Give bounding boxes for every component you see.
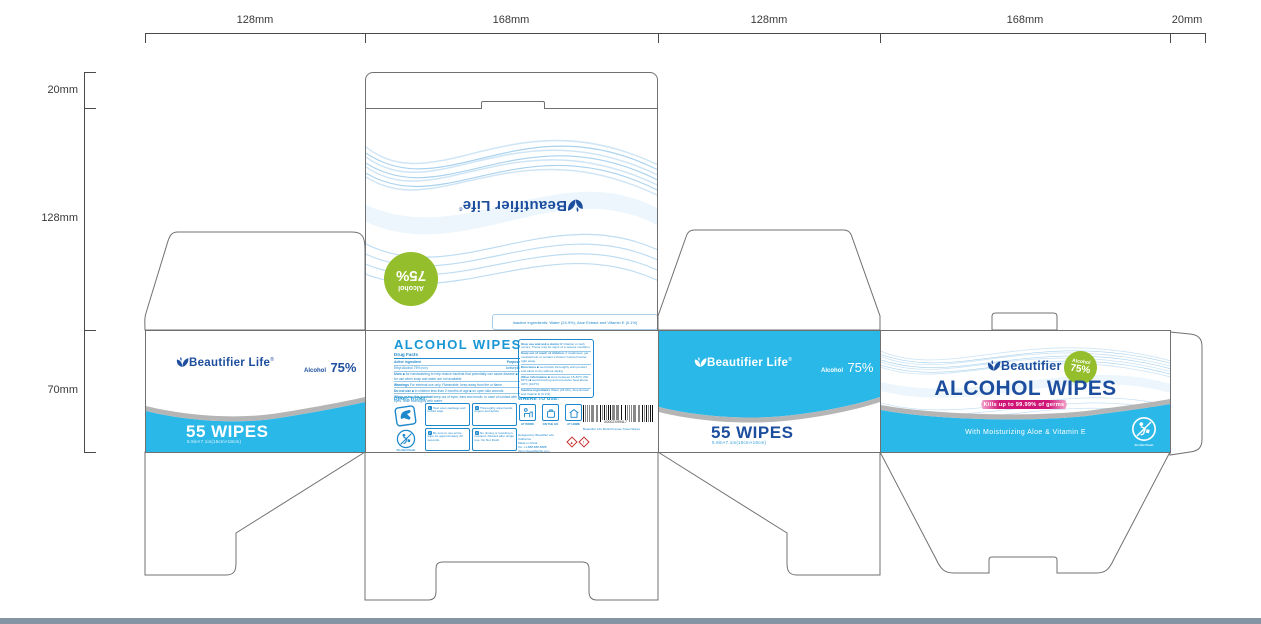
front-face-panel: Beautifier Life® Alcohol 75% ALCOHOL WIP… <box>880 330 1171 453</box>
drug-facts-box-2: Stop use and ask a doctor if irritation … <box>518 339 594 398</box>
contact-block: Designed by Beautifier Life California M… <box>518 433 566 453</box>
active-ingredient: Ethyl Alcohol 75% (v/v) <box>394 366 428 370</box>
tuck-tab-top <box>992 313 1057 330</box>
at-home-label: AT HOME <box>564 422 583 426</box>
alcohol-word: Alcohol <box>821 368 843 374</box>
tagline: With Moisturizing Aloe & Vitamin E <box>965 429 1086 436</box>
glue-flap-right <box>1170 332 1202 455</box>
leaf-icon <box>694 357 707 369</box>
hazard-icons: ▲ ! <box>568 438 588 446</box>
wipes-size: 5.9in×7.1in(15cm×18cm) <box>187 439 241 444</box>
drug-facts-box: Drug Facts Active ingredient Purpose Eth… <box>394 352 520 404</box>
bottom-flap-3 <box>658 452 880 575</box>
do-not-flush-caption: Do Not Flush <box>1127 443 1161 447</box>
badge-percent: 75% <box>396 267 426 283</box>
percent-value: 75% <box>847 360 873 375</box>
uses-text: ■ for handwashing to help reduce bacteri… <box>394 372 518 380</box>
directions-heading: DIRECTIONS: <box>394 397 427 402</box>
contact-line-1: Designed by Beautifier Life California <box>518 433 566 441</box>
do-not-use-label: Do not use <box>394 389 411 393</box>
active-ingredient-label: Active ingredient <box>394 360 421 364</box>
wipes-size: 5.9in×7.1in(15cm×18cm) <box>712 440 766 445</box>
dust-flap-middle <box>658 230 880 330</box>
alcohol-75-label: Alcohol 75% <box>821 359 873 377</box>
alcohol-75-label: Alcohol 75% <box>304 359 356 377</box>
registered-mark: ® <box>788 357 792 363</box>
barcode-caption: Beautifier Life Multi-Purpose Towel Wipe… <box>583 427 640 431</box>
where-to-use-tiles: AT WORK ON THE GO AT HOME <box>518 404 583 426</box>
on-the-go-label: ON THE GO <box>541 422 560 426</box>
step-text: Tear open package and unfold wipe. <box>428 406 466 414</box>
do-not-flush-caption: Do Not Flush <box>392 448 420 452</box>
claim-ribbon: Kills up to 99.99% of germs <box>981 400 1067 409</box>
step-text: Thoroughly wipe hands, fingers and artic… <box>475 406 513 414</box>
directions-steps: 1Tear open package and unfold wipe. 3Tho… <box>425 403 517 451</box>
brand-logo: Beautifier Life® <box>176 357 274 369</box>
bottom-flap-2 <box>365 452 658 600</box>
at-work-label: AT WORK <box>518 422 537 426</box>
bottom-flap-4 <box>880 452 1170 573</box>
warnings-text: For external use only. Flammable, keep a… <box>410 383 503 387</box>
thumb-tab <box>481 101 545 109</box>
on-the-go-icon <box>542 404 559 421</box>
bottom-flap-1 <box>145 452 365 575</box>
front-info-panel: ALCOHOL WIPES Drug Facts Active ingredie… <box>365 330 659 453</box>
step-box-3: 2Be sure to use entire wipe for approxim… <box>425 428 470 451</box>
badge-alcohol-label: Alcohol <box>398 283 424 290</box>
at-home-icon <box>565 404 582 421</box>
wipe-hand-icon <box>393 403 419 429</box>
registered-mark: ® <box>270 357 274 363</box>
at-work-icon <box>519 404 536 421</box>
flammable-icon: ▲ <box>566 436 577 447</box>
leaf-icon <box>987 360 1001 373</box>
barcode-number: X000ZX994L7 <box>602 420 629 424</box>
step-box-1: 1Tear open package and unfold wipe. <box>425 403 470 426</box>
badge-percent: 75% <box>1069 364 1090 377</box>
step-box-4: 4No rinsing or toweling is required. Dis… <box>472 428 517 451</box>
leaf-icon <box>567 197 584 212</box>
step-text: Be sure to use entire wipe for approxima… <box>428 431 463 442</box>
where-to-use-heading: WHERE TO USE: <box>518 397 559 402</box>
percent-value: 75% <box>330 360 356 375</box>
registered-mark: ® <box>458 205 462 211</box>
product-title: ALCOHOL WIPES <box>934 377 1116 401</box>
wtu-at-work: AT WORK <box>518 404 537 426</box>
contact-line-4: https://beautifierlife.com <box>518 449 566 453</box>
inactive-ingredients-strip: Inactive ingredients: Water (24.9%), Alo… <box>492 314 658 330</box>
wtu-at-home: AT HOME <box>564 404 583 426</box>
top-panel: Beautifier Life® Alcohol 75% Inactive in… <box>365 108 658 331</box>
front-title: ALCOHOL WIPES <box>394 337 522 352</box>
warnings-label: Warnings <box>394 383 409 387</box>
step-box-2: 3Thoroughly wipe hands, fingers and arti… <box>472 403 517 426</box>
side-panel-middle: Beautifier Life® Alcohol 75% 55 WIPES 5.… <box>658 330 881 453</box>
brand-name: Beautifier Life® <box>458 197 567 214</box>
packaging-dieline-canvas: 128mm 168mm 128mm 168mm 20mm 20mm 128mm … <box>0 0 1261 624</box>
brand-name: Beautifier Life® <box>707 357 792 369</box>
irritant-icon: ! <box>578 436 589 447</box>
wtu-on-the-go: ON THE GO <box>541 404 560 426</box>
alcohol-75-badge-upsidedown: Alcohol 75% <box>384 252 438 306</box>
drug-facts-title: Drug Facts <box>394 352 520 359</box>
brand-logo: Beautifier Life® <box>694 357 792 369</box>
brand-logo-upsidedown: Beautifier Life® <box>444 197 584 214</box>
do-not-flush-icon <box>1131 416 1157 442</box>
side-panel-left: Beautifier Life® Alcohol 75% 55 WIPES 5.… <box>145 330 366 453</box>
alcohol-word: Alcohol <box>304 368 326 374</box>
leaf-icon <box>176 357 189 369</box>
do-not-flush-icon <box>396 429 416 449</box>
do-not-use-text: ■ in children less than 2 months of age … <box>412 389 503 393</box>
step-text: No rinsing or toweling is required. Disc… <box>475 431 515 442</box>
dust-flap-left <box>145 232 365 330</box>
brand-name: Beautifier Life® <box>189 357 274 369</box>
